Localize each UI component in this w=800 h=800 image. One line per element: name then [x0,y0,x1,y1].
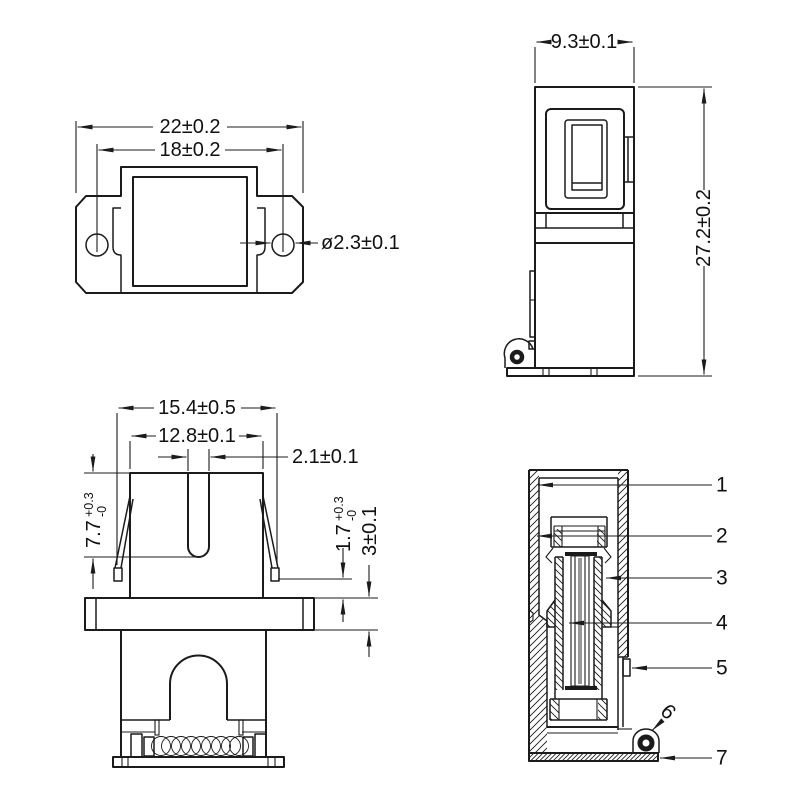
side-view: 9.3±0.1 27.2±0.2 [504,31,715,376]
dim-front-overall: 15.4±0.5 [158,397,236,419]
part-label-5: 5 [716,657,728,680]
part-label-4: 4 [716,612,728,635]
dim-top-overall: 22±0.2 [159,116,220,138]
part-label-3: 3 [716,567,728,590]
section-view: 1 2 3 4 5 6 7 [529,470,728,770]
drawing-canvas: 22±0.2 18±0.2 ø2.3±0.1 [0,0,800,800]
part-label-6: 6 [656,700,681,725]
part-label-2: 2 [716,525,728,548]
part-label-7: 7 [716,747,728,770]
dim-front-slot: 2.1±0.1 [292,446,359,468]
dim-side-height: 27.2±0.2 [693,189,715,267]
dim-side-width: 9.3±0.1 [551,31,618,53]
dim-top-hole-dia: ø2.3±0.1 [321,232,400,254]
top-view: 22±0.2 18±0.2 ø2.3±0.1 [76,116,400,293]
dim-front-latch-minus: -0 [345,510,359,521]
spring-coil [152,737,249,756]
dim-front-inner: 12.8±0.1 [158,425,236,447]
technical-drawing: 22±0.2 18±0.2 ø2.3±0.1 [0,0,800,800]
dim-top-hole-spacing: 18±0.2 [159,139,220,161]
dim-front-flange: 3±0.1 [359,506,381,556]
dim-front-latch: 1.7 [333,524,355,552]
dim-front-latch-plus: +0.3 [332,496,346,521]
dim-front-slot-depth-plus: +0.3 [82,492,96,517]
dim-front-slot-depth-minus: -0 [95,506,109,517]
dim-front-slot-depth: 7.7 [83,520,105,548]
part-label-1: 1 [716,474,728,497]
front-view: 15.4±0.5 12.8±0.1 2.1±0.1 7.7 +0.3 -0 1.… [82,397,381,767]
